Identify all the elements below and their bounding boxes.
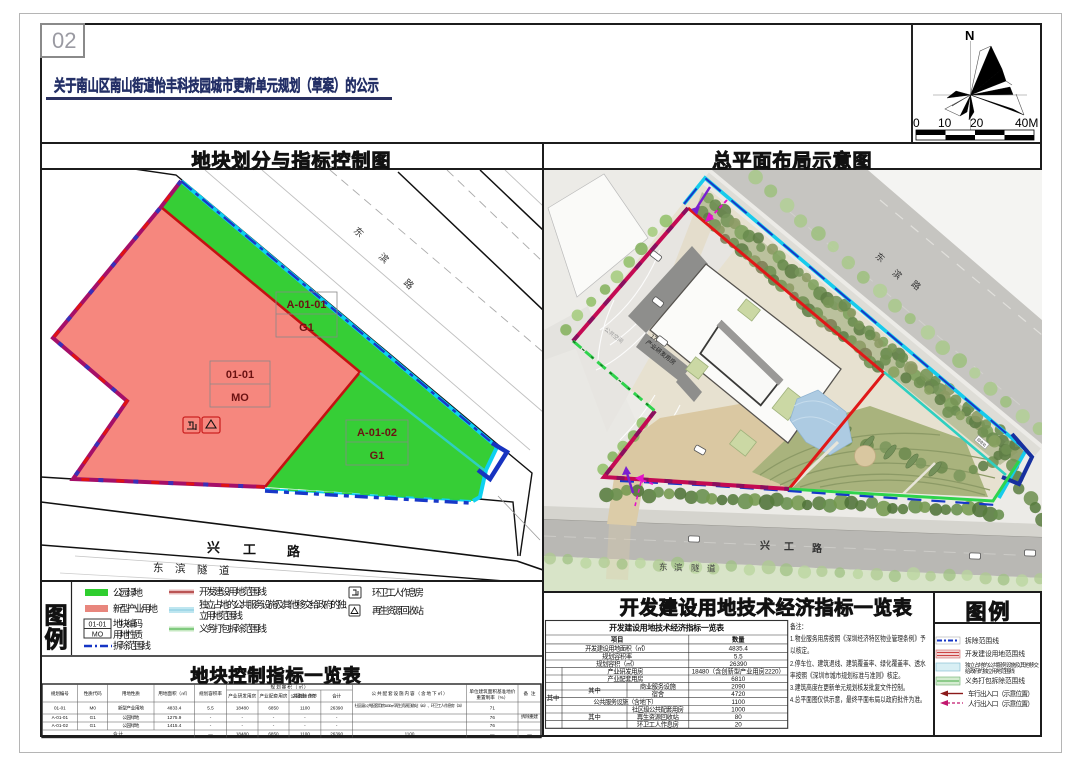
svg-text:40M: 40M <box>1015 116 1038 130</box>
svg-text:其中: 其中 <box>547 693 560 702</box>
svg-text:路: 路 <box>287 544 301 559</box>
svg-text:独立占地的公共服务设施及其他移交: 独立占地的公共服务设施及其他移交 <box>965 661 1039 669</box>
svg-text:路: 路 <box>401 277 416 293</box>
svg-text:用地面积（㎡）: 用地面积（㎡） <box>158 690 190 697</box>
svg-text:东: 东 <box>659 562 668 572</box>
svg-text:开发建设用地范围线: 开发建设用地范围线 <box>199 586 267 598</box>
svg-text:-: - <box>336 723 338 728</box>
svg-text:义务打包拆除范围线: 义务打包拆除范围线 <box>965 676 1025 685</box>
svg-text:G1: G1 <box>90 715 97 720</box>
svg-text:社区级公共配套用房: 社区级公共配套用房 <box>632 704 684 713</box>
svg-text:76: 76 <box>490 723 496 728</box>
svg-text:26390: 26390 <box>330 706 343 711</box>
svg-text:71: 71 <box>490 706 496 711</box>
svg-text:规划容积率: 规划容积率 <box>199 690 222 697</box>
svg-text:备注: 备注 <box>524 690 536 697</box>
svg-text:环卫工人作息房: 环卫工人作息房 <box>637 720 679 729</box>
svg-text:道: 道 <box>707 564 716 574</box>
svg-text:1275.9: 1275.9 <box>167 715 181 720</box>
svg-text:N: N <box>965 28 974 43</box>
svg-text:-: - <box>241 723 243 728</box>
svg-text:18480（含创新型产业用房2220）: 18480（含创新型产业用房2220） <box>692 666 785 675</box>
svg-text:道: 道 <box>219 564 230 577</box>
svg-text:80: 80 <box>735 714 743 721</box>
svg-text:M0: M0 <box>90 706 97 711</box>
svg-text:性质代码: 性质代码 <box>84 690 102 697</box>
svg-text:工: 工 <box>243 542 256 557</box>
svg-text:其中: 其中 <box>588 685 601 694</box>
svg-text:独立占地的公共服务设施及其他移交给政府的独: 独立占地的公共服务设施及其他移交给政府的独 <box>199 599 347 611</box>
svg-text:1415.4: 1415.4 <box>167 723 181 728</box>
svg-text:公共配套设施（含地下）: 公共配套设施（含地下） <box>290 693 319 700</box>
svg-text:地块编码: 地块编码 <box>113 618 143 630</box>
svg-text:20: 20 <box>735 722 743 729</box>
svg-text:—: — <box>490 732 495 737</box>
svg-text:用地性质: 用地性质 <box>122 690 140 697</box>
svg-text:兴: 兴 <box>760 539 770 552</box>
svg-text:数量: 数量 <box>732 635 745 644</box>
svg-text:产业研发用房: 产业研发用房 <box>607 666 643 675</box>
svg-text:公园绿地: 公园绿地 <box>122 714 139 721</box>
svg-text:G1: G1 <box>90 723 97 728</box>
svg-text:A-01-02: A-01-02 <box>357 427 397 439</box>
svg-text:01-01: 01-01 <box>54 706 66 711</box>
svg-text:项目: 项目 <box>611 635 624 644</box>
svg-text:社区级公共配套用房1000㎡ 再生资源回收站（80）、环卫工: 社区级公共配套用房1000㎡ 再生资源回收站（80）、环卫工人作息房（20） <box>355 702 465 708</box>
svg-text:—: — <box>527 732 532 737</box>
svg-text:01-01: 01-01 <box>89 622 107 629</box>
svg-text:再生资源回收站: 再生资源回收站 <box>637 712 680 721</box>
svg-text:图: 图 <box>45 602 68 628</box>
svg-text:工: 工 <box>784 542 794 553</box>
svg-text:MO: MO <box>231 392 249 404</box>
svg-text:1100: 1100 <box>731 699 745 706</box>
svg-text:76: 76 <box>490 715 496 720</box>
svg-text:10: 10 <box>938 116 952 130</box>
svg-text:兴: 兴 <box>207 540 220 555</box>
svg-text:再生资源回收站: 再生资源回收站 <box>372 605 424 617</box>
svg-text:-: - <box>210 715 212 720</box>
svg-text:合计: 合计 <box>332 693 341 700</box>
svg-text:拆除范围线: 拆除范围线 <box>965 636 999 645</box>
svg-text:滨: 滨 <box>674 563 683 573</box>
svg-text:-: - <box>273 723 275 728</box>
svg-text:立用地范围线: 立用地范围线 <box>199 610 243 622</box>
svg-text:26390: 26390 <box>330 732 343 737</box>
svg-text:5.5: 5.5 <box>734 653 743 660</box>
svg-text:产业研发用房: 产业研发用房 <box>228 693 256 700</box>
svg-text:MO: MO <box>92 632 104 639</box>
svg-text:18480: 18480 <box>236 706 249 711</box>
svg-text:义务打包拆除范围线: 义务打包拆除范围线 <box>199 623 267 635</box>
svg-text:G1: G1 <box>299 322 314 334</box>
svg-text:规划容积（㎡）: 规划容积（㎡） <box>596 659 638 668</box>
svg-text:01-01: 01-01 <box>226 369 254 381</box>
svg-text:-: - <box>210 723 212 728</box>
svg-text:1100: 1100 <box>405 732 415 737</box>
svg-text:规划容积率: 规划容积率 <box>602 651 632 660</box>
svg-text:18480: 18480 <box>236 732 249 737</box>
svg-text:4720: 4720 <box>731 691 746 698</box>
svg-text:1100: 1100 <box>300 706 310 711</box>
svg-text:公共服务设施（含地下）: 公共服务设施（含地下） <box>593 697 657 706</box>
svg-text:公园绿地: 公园绿地 <box>122 722 139 729</box>
svg-text:隧: 隧 <box>691 563 700 573</box>
svg-text:5.5: 5.5 <box>207 706 214 711</box>
svg-text:给政府的独立用地范围线: 给政府的独立用地范围线 <box>965 667 1015 675</box>
svg-text:-: - <box>336 715 338 720</box>
svg-text:东: 东 <box>351 225 366 240</box>
svg-text:G1: G1 <box>370 450 385 462</box>
svg-text:-: - <box>304 715 306 720</box>
svg-text:1000: 1000 <box>731 706 746 713</box>
svg-text:产业配套用房: 产业配套用房 <box>607 674 643 683</box>
svg-text:用地性质: 用地性质 <box>113 629 143 641</box>
svg-text:-: - <box>273 715 275 720</box>
svg-text:开发建设用地面积（㎡）: 开发建设用地面积（㎡） <box>585 643 649 652</box>
svg-text:商业服务设施: 商业服务设施 <box>640 682 677 691</box>
svg-text:6850: 6850 <box>268 732 279 737</box>
svg-text:开发建设用地技术经济指标一览表: 开发建设用地技术经济指标一览表 <box>609 622 725 632</box>
svg-text:路: 路 <box>812 542 823 555</box>
svg-text:规划容积（㎡）: 规划容积（㎡） <box>271 684 309 691</box>
svg-text:例: 例 <box>45 626 68 652</box>
svg-text:公共配套设施内容（含地下㎡）: 公共配套设施内容（含地下㎡） <box>372 690 448 697</box>
svg-text:6850: 6850 <box>268 706 279 711</box>
svg-text:东: 东 <box>153 561 164 574</box>
svg-text:-: - <box>241 715 243 720</box>
svg-text:人行出入口（示意位置）: 人行出入口（示意位置） <box>968 699 1034 708</box>
svg-text:-: - <box>304 723 306 728</box>
svg-text:拆除范围线: 拆除范围线 <box>113 640 151 652</box>
svg-text:新型产业用地: 新型产业用地 <box>118 705 144 712</box>
svg-text:2090: 2090 <box>731 684 746 691</box>
svg-text:4833.4: 4833.4 <box>167 706 181 711</box>
svg-text:A-01-02: A-01-02 <box>52 723 69 728</box>
svg-text:合计: 合计 <box>113 731 123 738</box>
svg-text:20: 20 <box>970 116 984 130</box>
svg-text:其中: 其中 <box>588 712 601 721</box>
svg-text:产业配套用房: 产业配套用房 <box>260 693 288 700</box>
svg-text:规划编号: 规划编号 <box>51 690 69 697</box>
svg-text:6810: 6810 <box>731 676 746 683</box>
svg-text:宿舍: 宿舍 <box>652 689 665 698</box>
svg-text:滨: 滨 <box>175 562 186 575</box>
svg-text:重置制率（%）: 重置制率（%） <box>476 694 508 701</box>
svg-text:A-01-01: A-01-01 <box>52 715 69 720</box>
svg-text:0: 0 <box>913 116 920 130</box>
svg-text:拆除重建: 拆除重建 <box>521 713 538 720</box>
svg-text:单位建筑面积基准地价: 单位建筑面积基准地价 <box>469 688 515 695</box>
svg-text:26390: 26390 <box>729 661 747 668</box>
svg-text:—: — <box>208 732 213 737</box>
svg-text:新型产业用地: 新型产业用地 <box>113 603 158 615</box>
svg-text:车行出入口（示意位置）: 车行出入口（示意位置） <box>968 689 1034 698</box>
svg-text:4835.4: 4835.4 <box>729 645 749 652</box>
svg-text:隧: 隧 <box>197 563 208 576</box>
svg-text:1100: 1100 <box>300 732 310 737</box>
svg-text:环卫工人作息房: 环卫工人作息房 <box>372 587 424 599</box>
svg-text:A-01-01: A-01-01 <box>287 299 327 311</box>
svg-text:滨: 滨 <box>376 251 391 267</box>
svg-text:开发建设用地范围线: 开发建设用地范围线 <box>965 649 1025 658</box>
svg-text:公园绿地: 公园绿地 <box>113 587 143 599</box>
